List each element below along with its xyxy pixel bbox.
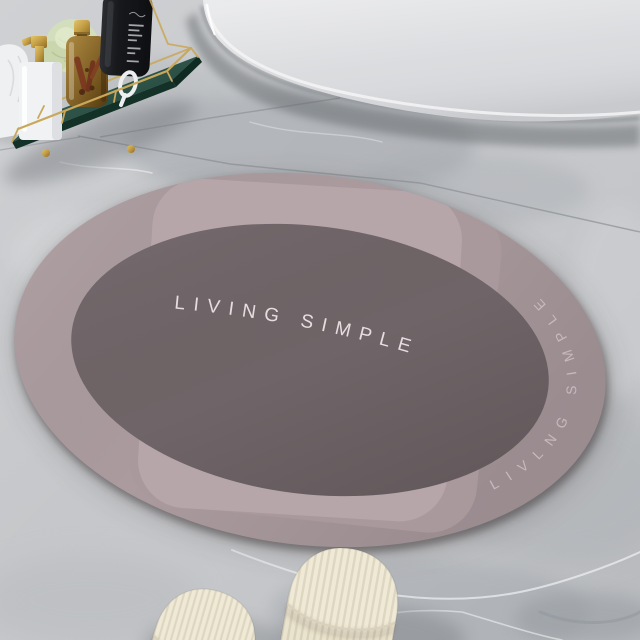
bathroom-scene: LIVING SIMPLE LIVLNG SIMPLE xyxy=(0,0,640,640)
pump-bottle-highlight xyxy=(22,66,27,132)
pump-tube xyxy=(35,46,44,64)
amber-bottle-highlight xyxy=(69,42,74,100)
pump-bottle-shade xyxy=(52,62,62,140)
black-shampoo-bottle xyxy=(99,0,153,77)
scene-canvas: LIVING SIMPLE LIVLNG SIMPLE xyxy=(0,0,640,640)
